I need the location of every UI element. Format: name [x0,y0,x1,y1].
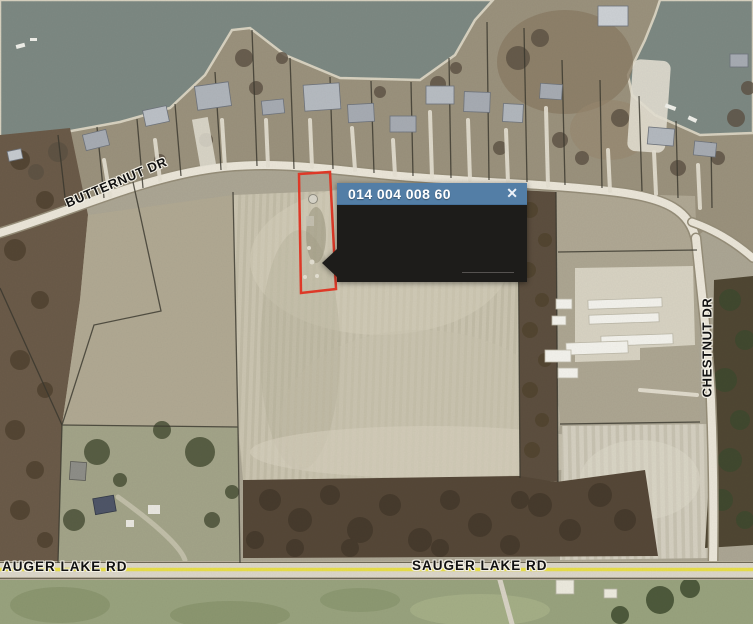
popup-title-parcel-id: 014 004 008 60 [337,186,451,202]
popup-body [337,205,527,282]
parcel-info-popup: 014 004 008 60 ✕ [337,183,527,282]
road-label-chestnut-dr: CHESTNUT DR [700,290,715,406]
road-label-sauger-lake-rd-left: AUGER LAKE RD [2,559,128,574]
photo-grain [0,0,753,624]
close-icon[interactable]: ✕ [497,183,527,204]
popup-divider-line [462,272,514,273]
popup-pointer-arrow [322,249,337,277]
road-label-sauger-lake-rd-center: SAUGER LAKE RD [412,558,548,573]
map-viewport[interactable]: BUTTERNUT DR CHESTNUT DR AUGER LAKE RD S… [0,0,753,624]
popup-header[interactable]: 014 004 008 60 ✕ [337,183,527,205]
aerial-imagery [0,0,753,624]
